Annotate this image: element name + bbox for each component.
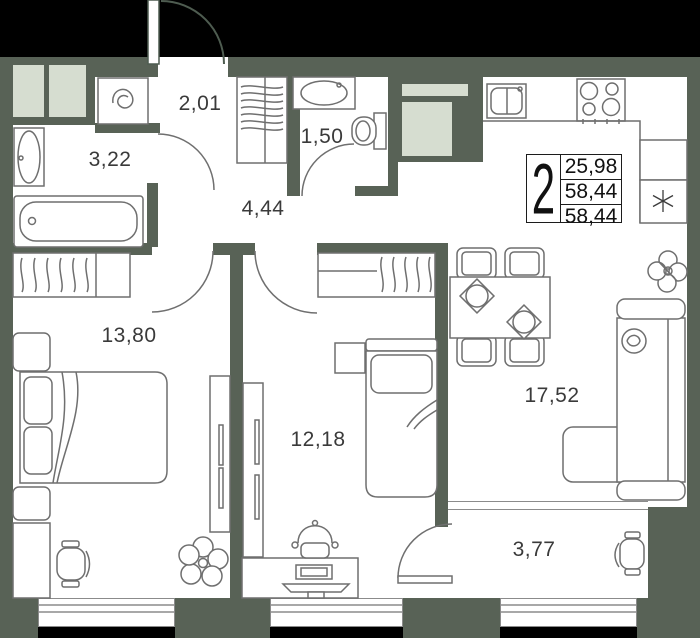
bedroom1-right-wardrobe-icon <box>210 376 230 532</box>
area-value-2: 58,44 <box>561 179 621 204</box>
toilet-icon <box>352 113 386 149</box>
sofa-icon <box>563 299 685 500</box>
double-bed-icon <box>20 372 167 483</box>
bedroom1-nightstand-bottom-icon <box>13 487 50 520</box>
label-bedroom2-area: 12,18 <box>290 428 345 452</box>
wc-sink-icon <box>293 77 355 109</box>
balcony-chair-icon <box>615 532 644 575</box>
label-wc-area: 1,50 <box>301 125 344 149</box>
bathroom-door-arc-icon <box>158 134 214 190</box>
stove-icon <box>577 79 625 124</box>
dining-table-icon <box>450 277 550 339</box>
label-hallway-area: 4,44 <box>242 197 285 221</box>
washing-machine-icon <box>98 78 148 124</box>
label-living-kitchen-area: 17,52 <box>524 384 579 408</box>
bedroom1-door-arc-icon <box>152 251 213 312</box>
living-plant-icon <box>648 251 687 292</box>
area-value-3: 58,44 <box>561 204 621 229</box>
appliance-box-icon <box>640 140 687 180</box>
label-bedroom1-area: 13,80 <box>101 324 156 348</box>
hall-closet-hangers-icon <box>237 77 287 163</box>
furniture-layer <box>0 0 700 638</box>
window-glass-lines <box>38 605 637 612</box>
area-values: 25,98 58,44 58,44 <box>561 155 621 222</box>
single-bed-icon <box>366 339 437 497</box>
rooms-count-badge: 2 <box>527 155 561 222</box>
floor-plan: 3,22 2,01 1,50 4,44 13,80 12,18 17,52 3,… <box>0 0 700 638</box>
bedroom1-chair-icon <box>57 541 90 587</box>
kitchen-sink-icon <box>487 84 526 118</box>
bedroom2-desk-icon <box>242 558 358 598</box>
bedroom1-wardrobe-icon <box>13 253 130 297</box>
label-balcony-area: 3,77 <box>513 538 556 562</box>
wc-door-arc-icon <box>302 144 354 196</box>
label-bathroom-area: 3,22 <box>89 148 132 172</box>
area-value-1: 25,98 <box>561 155 621 179</box>
asterisk-ac-icon <box>640 180 687 223</box>
bedroom2-nightstand-icon <box>335 343 365 373</box>
bedroom2-chair-icon <box>292 521 338 559</box>
bathtub-icon <box>14 196 143 247</box>
bedroom1-desk-icon <box>13 523 50 598</box>
balcony-door-arc-icon <box>398 524 452 583</box>
apartment-stats-box: 2 25,98 58,44 58,44 <box>526 154 622 223</box>
bedroom2-door-arc-icon <box>255 251 317 313</box>
bedroom2-left-wardrobe-icon <box>243 383 263 557</box>
bathroom-sink-icon <box>14 128 44 186</box>
label-entry-area: 2,01 <box>179 92 222 116</box>
entrance-door-arc-icon <box>148 0 224 64</box>
bedroom1-plant-icon <box>179 537 228 586</box>
bedroom2-wardrobe-icon <box>318 253 435 297</box>
bedroom1-nightstand-top-icon <box>13 333 50 371</box>
